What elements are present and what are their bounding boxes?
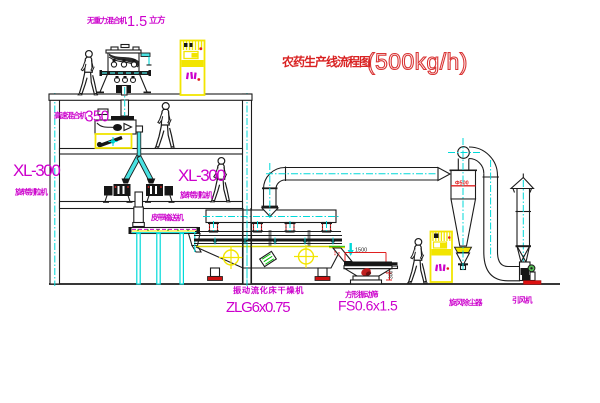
svg-text:立方: 立方 <box>149 15 166 25</box>
svg-text:FS0.6x1.5: FS0.6x1.5 <box>338 298 398 314</box>
svg-text:(500kg/h): (500kg/h) <box>367 49 468 75</box>
svg-text:无重力混合机: 无重力混合机 <box>86 15 127 25</box>
svg-text:旋转制粒机: 旋转制粒机 <box>179 190 213 200</box>
svg-text:1500: 1500 <box>355 248 367 254</box>
svg-text:1.5: 1.5 <box>127 14 147 30</box>
svg-text:Φ500: Φ500 <box>455 181 469 187</box>
svg-text:农药生产线流程图: 农药生产线流程图 <box>281 54 371 69</box>
svg-text:皮带输送机: 皮带输送机 <box>150 212 184 222</box>
svg-text:XL-300: XL-300 <box>13 161 60 180</box>
svg-text:XL-300: XL-300 <box>178 166 225 185</box>
svg-text:旋转制粒机: 旋转制粒机 <box>14 187 48 197</box>
svg-text:旋风除尘器: 旋风除尘器 <box>448 297 483 307</box>
svg-text:300: 300 <box>389 270 395 279</box>
svg-text:振动流化床干燥机: 振动流化床干燥机 <box>233 285 304 295</box>
svg-text:350: 350 <box>85 109 110 126</box>
svg-text:ZLG6x0.75: ZLG6x0.75 <box>226 299 290 316</box>
svg-text:高速混合机: 高速混合机 <box>54 110 87 120</box>
svg-text:引风机: 引风机 <box>512 295 533 305</box>
